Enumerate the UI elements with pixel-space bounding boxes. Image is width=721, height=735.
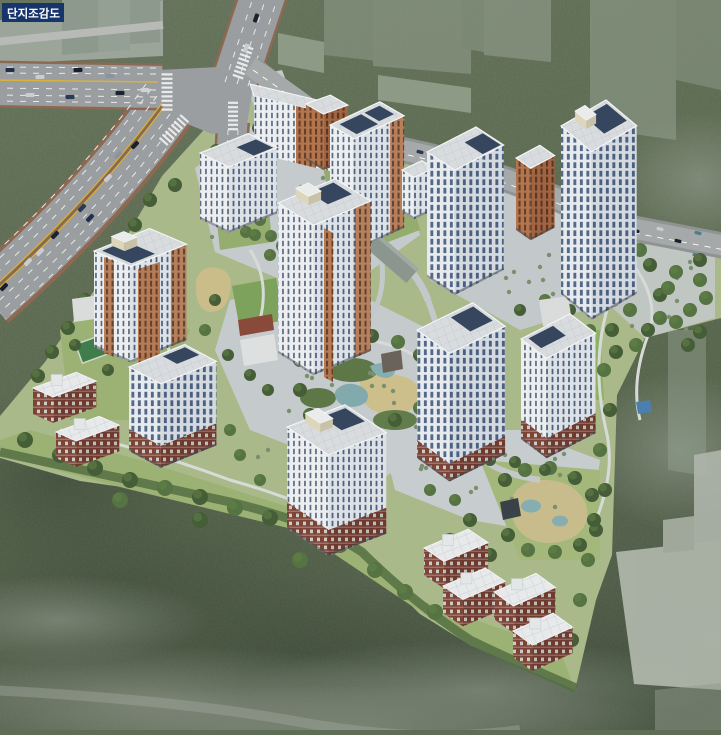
svg-text:단지조감도: 단지조감도 — [7, 7, 60, 21]
